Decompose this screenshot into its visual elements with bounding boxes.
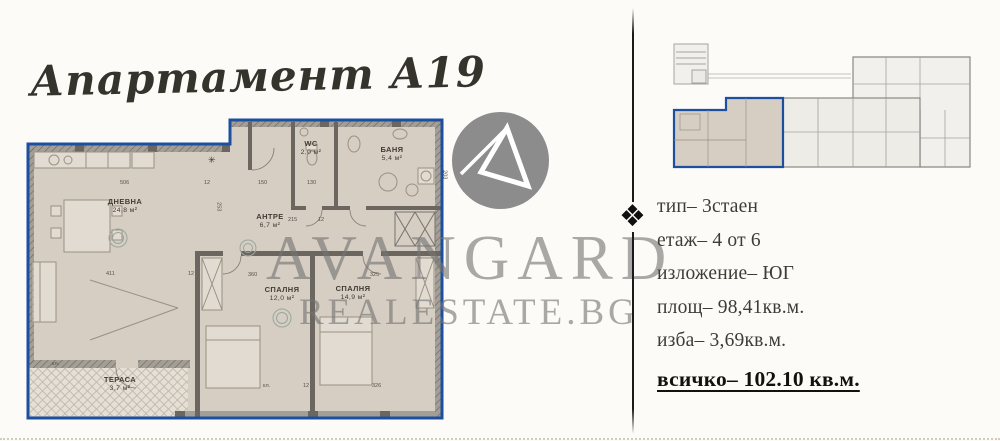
dimension-label: кл. [263, 384, 270, 390]
room-name: ТЕРАСА [90, 375, 150, 385]
other-apartments [783, 57, 970, 167]
room-name: БАНЯ [367, 145, 417, 155]
dimension-label: 12 [303, 384, 309, 390]
avangard-logo-icon [452, 112, 549, 209]
room-label-wc: WC 2,0 м² [286, 139, 336, 158]
building-floor-overview [668, 30, 994, 178]
dimension-label: 360 [248, 273, 257, 279]
dimension-label: 411 [106, 272, 115, 278]
room-label-terrace: ТЕРАСА 3,7 м² [90, 375, 150, 394]
room-label-bath: БАНЯ 5,4 м² [367, 145, 417, 164]
page-title: Апартамент А19 [30, 47, 487, 106]
room-area: 24,8 м² [90, 207, 160, 216]
scan-edge-dots [0, 438, 1000, 440]
detail-total: всичко– 102.10 кв.м. [657, 367, 860, 392]
move-handle-icon: ❖ [618, 202, 647, 232]
detail-exposure: изложение– ЮГ [657, 263, 860, 285]
apartment-a19-highlight [674, 98, 783, 167]
watermark-domain: REALESTATE.BG [299, 294, 639, 331]
apartment-details: тип– 3стаен етаж– 4 от 6 изложение– ЮГ п… [657, 196, 860, 392]
watermark-brand: AVANGARD [266, 227, 674, 290]
dimension-label: 150 [258, 181, 267, 187]
north-star-mark: ✳ [208, 156, 216, 166]
listing-sheet: { "page": { "background": "#fcfbf7", "ac… [0, 0, 1000, 441]
detail-floor: етаж– 4 от 6 [657, 230, 860, 252]
dimension-label: 253 [215, 202, 221, 211]
dimension-label: 326 [372, 384, 381, 390]
detail-cellar: изба– 3,69кв.м. [657, 330, 860, 352]
detail-type: тип– 3стаен [657, 196, 860, 218]
room-area: 3,7 м² [90, 385, 150, 394]
room-label-living: ДНЕВНА 24,8 м² [90, 197, 160, 216]
dimension-label: 506 [120, 181, 129, 187]
dimension-label: 12 [204, 181, 210, 187]
room-area: 5,4 м² [367, 155, 417, 164]
room-name: WC [286, 139, 336, 149]
dimension-label: кл. [52, 362, 59, 368]
room-area: 2,0 м² [286, 149, 336, 158]
detail-area: площ– 98,41кв.м. [657, 297, 860, 319]
dimension-label: 203 [441, 170, 447, 179]
dimension-label: 130 [307, 181, 316, 187]
room-name: ДНЕВНА [90, 197, 160, 207]
dimension-label: 12 [188, 272, 194, 278]
